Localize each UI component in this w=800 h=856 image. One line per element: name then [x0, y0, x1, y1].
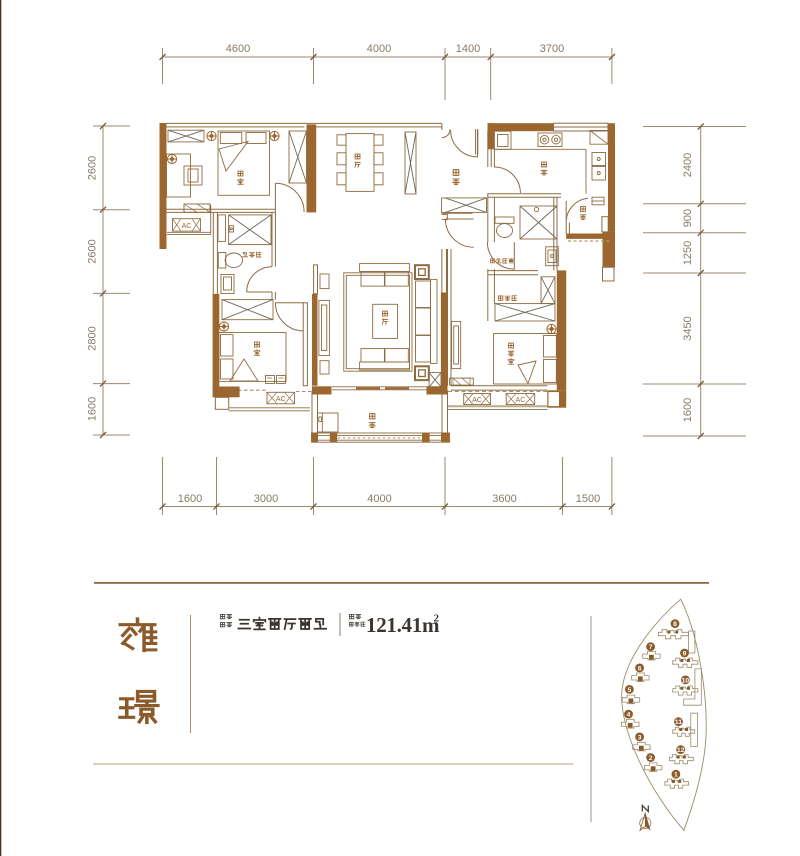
svg-text:AC: AC	[276, 396, 286, 403]
svg-text:4: 4	[627, 712, 631, 719]
svg-text:10: 10	[682, 677, 690, 684]
svg-text:AC: AC	[516, 397, 526, 404]
svg-text:1600: 1600	[178, 493, 202, 505]
svg-text:3000: 3000	[254, 493, 278, 505]
svg-text:4000: 4000	[367, 493, 391, 505]
svg-text:1600: 1600	[682, 398, 694, 422]
svg-text:5: 5	[628, 687, 632, 694]
svg-text:AC: AC	[472, 397, 482, 404]
svg-text:121.41m: 121.41m	[366, 613, 440, 637]
svg-text:2800: 2800	[87, 326, 99, 350]
svg-text:4600: 4600	[226, 43, 250, 55]
svg-text:12: 12	[677, 747, 685, 754]
svg-text:3450: 3450	[682, 316, 694, 340]
svg-text:3: 3	[638, 734, 642, 741]
svg-text:7: 7	[649, 644, 653, 651]
svg-text:3700: 3700	[540, 43, 564, 55]
svg-text:2: 2	[434, 613, 440, 625]
svg-text:8: 8	[673, 621, 677, 628]
svg-text:1400: 1400	[456, 43, 480, 55]
svg-text:2600: 2600	[87, 239, 99, 263]
svg-text:6: 6	[638, 665, 642, 672]
svg-text:AC: AC	[182, 223, 192, 230]
svg-text:1500: 1500	[576, 493, 600, 505]
svg-text:900: 900	[682, 209, 694, 227]
svg-text:1600: 1600	[87, 397, 99, 421]
svg-text:1: 1	[674, 772, 678, 779]
svg-text:2: 2	[649, 755, 653, 762]
svg-text:9: 9	[683, 650, 687, 657]
svg-text:3600: 3600	[492, 493, 516, 505]
svg-text:1250: 1250	[682, 241, 694, 265]
svg-text:2600: 2600	[87, 156, 99, 180]
svg-text:11: 11	[675, 719, 682, 726]
svg-text:4000: 4000	[367, 43, 391, 55]
svg-text:2400: 2400	[682, 153, 694, 177]
